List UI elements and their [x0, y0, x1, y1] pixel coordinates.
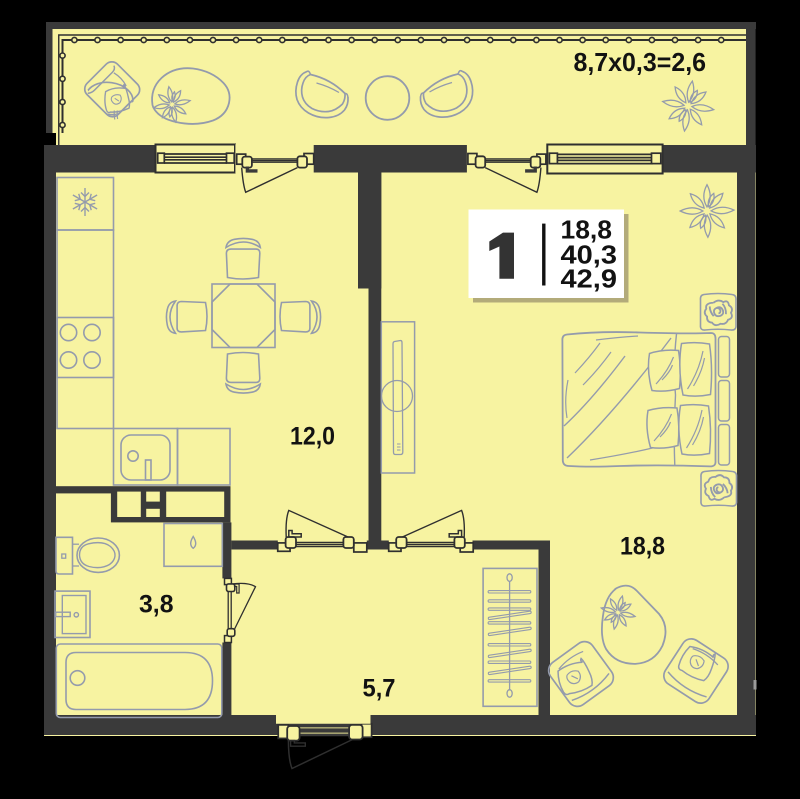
svg-text:42,9: 42,9	[561, 264, 618, 294]
svg-text:3,8: 3,8	[139, 591, 174, 619]
svg-text:18,8: 18,8	[620, 533, 665, 561]
svg-text:12,0: 12,0	[290, 423, 335, 451]
svg-text:5,7: 5,7	[363, 675, 396, 703]
svg-text:8,7x0,3=2,6: 8,7x0,3=2,6	[574, 47, 707, 77]
